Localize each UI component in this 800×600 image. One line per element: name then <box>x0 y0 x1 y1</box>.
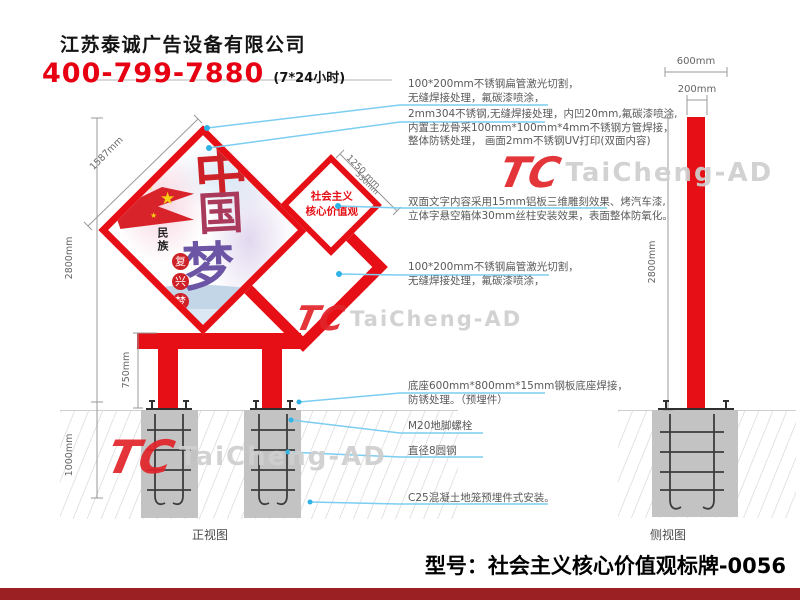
annotation-rebar: 直径8圆钢 <box>408 445 457 459</box>
front-view-label: 正视图 <box>180 526 240 543</box>
service-hours: (7*24小时) <box>273 71 345 86</box>
dim-front-leg: 750mm <box>121 340 133 400</box>
dim-side-height: 2800mm <box>647 232 659 292</box>
brand-text: TaiCheng-AD <box>350 309 522 330</box>
annotation-line: 直径8圆钢 <box>408 445 457 459</box>
annotation-line: 内置主龙骨采100mm*100mm*4mm不锈钢方管焊接， <box>408 122 678 136</box>
annotation-line: 立体字悬空箱体30mm丝柱安装效果，表面整体防氧化。 <box>408 210 673 224</box>
annotation-main-box: 2mm304不锈钢,无缝焊接处理，内凹20mm,氟碳漆喷涂, 内置主龙骨采100… <box>408 108 678 149</box>
spec-sheet: 江苏泰诚广告设备有限公司 400-799-7880 (7*24小时) ★ ★ ★… <box>0 0 800 600</box>
tc-logo-icon: TC <box>496 152 564 194</box>
annotation-line: 100*200mm不锈钢扁管激光切割， <box>408 261 579 275</box>
brand-text: TaiCheng-AD <box>179 444 387 470</box>
tc-logo-icon: TC <box>103 434 178 480</box>
annotation-line: 防锈处理。（预埋件） <box>408 394 628 408</box>
side-view-label: 侧视图 <box>638 526 698 543</box>
dim-front-underground: 1000mm <box>64 425 76 485</box>
annotation-line: 无缝焊接处理，氟碳漆喷涂， <box>408 92 579 106</box>
phone-number: 400-799-7880 <box>42 58 264 89</box>
dim-side-base: 600mm <box>666 56 726 68</box>
tc-logo-icon: TC <box>292 302 347 336</box>
annotation-line: 整体防锈处理， 画面2mm不锈钢UV打印(双面内容) <box>408 135 678 149</box>
dim-side-post: 200mm <box>667 84 727 96</box>
dim-front-height: 2800mm <box>64 228 76 288</box>
model-number: 型号：社会主义核心价值观标牌-0056 <box>425 550 786 580</box>
footer-bar <box>0 588 800 600</box>
annotation-line: 双面文字内容采用15mm铝板三维雕刻效果、烤汽车漆, <box>408 196 673 210</box>
watermark-logo: TC TaiCheng-AD <box>108 434 387 480</box>
annotation-line: M20地脚螺栓 <box>408 420 472 434</box>
annotation-anchor-bolt: M20地脚螺栓 <box>408 420 472 434</box>
annotation-line: 100*200mm不锈钢扁管激光切割， <box>408 78 579 92</box>
watermark-logo: TC TaiCheng-AD <box>296 302 522 336</box>
annotation-frame-tube-top: 100*200mm不锈钢扁管激光切割， 无缝焊接处理，氟碳漆喷涂， <box>408 78 579 105</box>
annotation-concrete: C25混凝土地笼预埋件式安装。 <box>408 492 555 506</box>
annotation-line: 2mm304不锈钢,无缝焊接处理，内凹20mm,氟碳漆喷涂, <box>408 108 678 122</box>
annotation-base-plate: 底座600mm*800mm*15mm钢板底座焊接， 防锈处理。（预埋件） <box>408 380 628 407</box>
phone-row: 400-799-7880 (7*24小时) <box>42 58 345 89</box>
brand-text: TaiCheng-AD <box>565 160 773 186</box>
company-name: 江苏泰诚广告设备有限公司 <box>60 30 306 57</box>
annotation-line: C25混凝土地笼预埋件式安装。 <box>408 492 555 506</box>
watermark-logo: TC TaiCheng-AD <box>500 152 773 194</box>
annotation-frame-tube-bottom: 100*200mm不锈钢扁管激光切割， 无缝焊接处理，氟碳漆喷涂， <box>408 261 579 288</box>
annotation-line: 无缝焊接处理，氟碳漆喷涂， <box>408 275 579 289</box>
annotation-lettering: 双面文字内容采用15mm铝板三维雕刻效果、烤汽车漆, 立体字悬空箱体30mm丝柱… <box>408 196 673 223</box>
annotation-line: 底座600mm*800mm*15mm钢板底座焊接， <box>408 380 628 394</box>
